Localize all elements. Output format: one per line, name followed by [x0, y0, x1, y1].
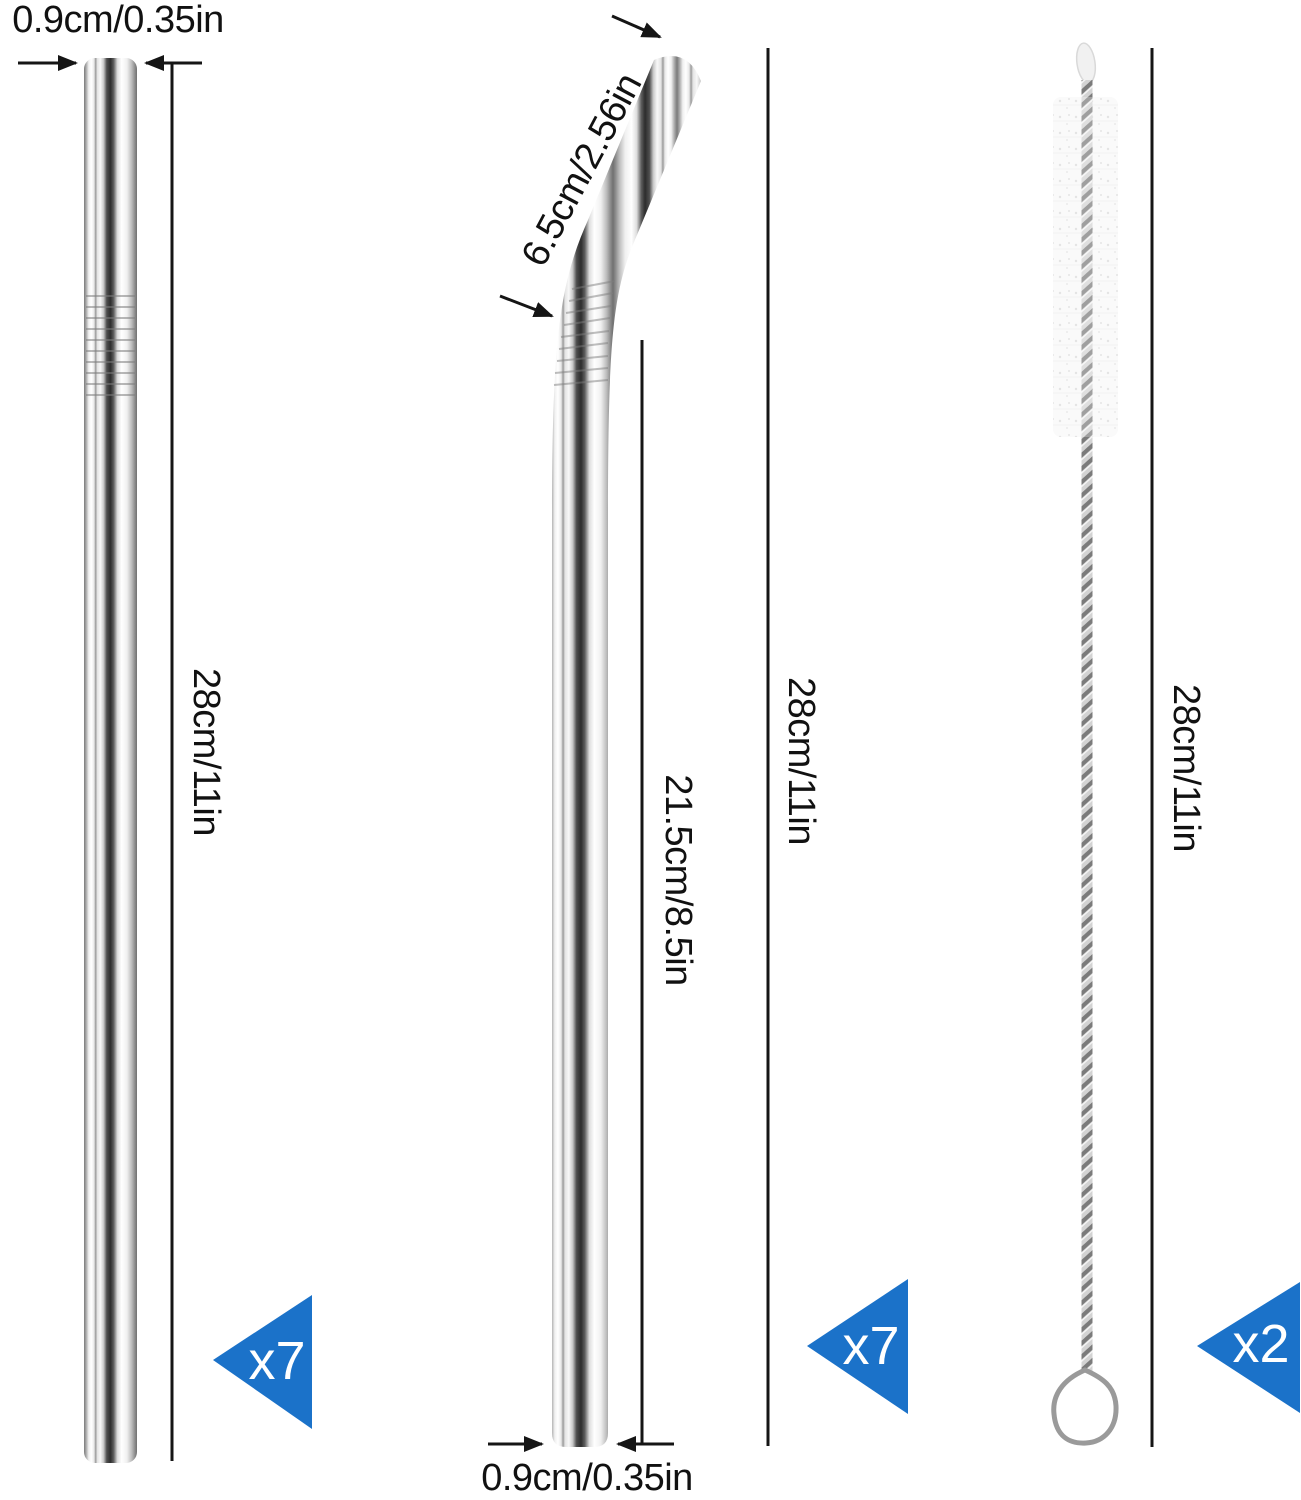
product-dimension-diagram: 0.9cm/0.35in 28cm/11in 6.5cm/2.56in 21.5…: [0, 0, 1301, 1500]
straight-straw-count-badge: x7: [248, 1334, 305, 1388]
bent-straw-count-badge: x7: [842, 1319, 899, 1373]
bend-start-arrow: [500, 296, 552, 316]
brush-count-badge: x2: [1232, 1317, 1289, 1371]
bent-straw-total-length-label: 28cm/11in: [782, 677, 820, 845]
straight-straw: [84, 58, 137, 1463]
bend-tip-arrow: [612, 16, 660, 37]
cleaning-brush: [1053, 42, 1118, 1443]
bent-straw-diameter-label: 0.9cm/0.35in: [481, 1459, 693, 1497]
brush-length-label: 28cm/11in: [1167, 684, 1205, 852]
count-badges: [213, 1279, 1300, 1429]
straight-straw-diameter-label: 0.9cm/0.35in: [12, 1, 224, 39]
brush-handle-loop: [1054, 1370, 1116, 1443]
bent-straw: [552, 56, 701, 1447]
straight-straw-length-label: 28cm/11in: [187, 668, 225, 836]
brush-tip-tuft: [1074, 42, 1097, 84]
bent-straw-straight-section-label: 21.5cm/8.5in: [659, 774, 697, 986]
